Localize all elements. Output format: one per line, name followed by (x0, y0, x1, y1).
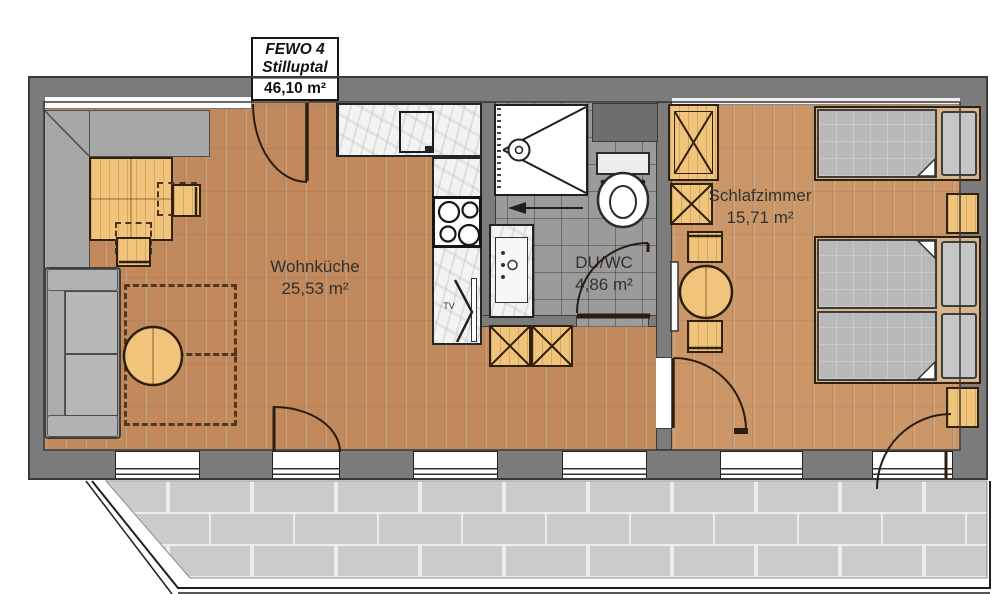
sofa-cushion-1 (65, 291, 118, 354)
bedroom-label: Schlafzimmer 15,71 m² (676, 185, 844, 229)
living-kitchen-name: Wohnküche (235, 256, 395, 278)
window-4 (720, 451, 803, 479)
window-3 (562, 451, 647, 479)
balcony-door-opening (872, 451, 953, 479)
sofa-armrest-top (47, 269, 118, 291)
terrace-paving (86, 481, 990, 594)
shower-wc-name: DU/WC (548, 252, 660, 274)
bed-single-pillow (941, 111, 977, 176)
chair-bottom (116, 237, 151, 267)
bedroom-name: Schlafzimmer (676, 185, 844, 207)
hall-cabinet-1 (489, 325, 531, 367)
bedroom-chair-south (687, 320, 723, 353)
window-2 (413, 451, 498, 479)
living-kitchen-label: Wohnküche 25,53 m² (235, 256, 395, 300)
sofa-armrest-bottom (47, 415, 118, 437)
wall-left (28, 77, 44, 479)
title-location: Stilluptal (253, 59, 337, 77)
title-project: FEWO 4 (253, 41, 337, 59)
stove (432, 196, 482, 248)
bedroom-area: 15,71 m² (676, 207, 844, 229)
shower (494, 104, 588, 196)
window-1 (115, 451, 200, 479)
bed-double-pillow-lower (941, 313, 977, 379)
hall-cabinet-2 (531, 325, 573, 367)
bedroom-divider-wall-lower (656, 428, 672, 450)
window-sill-living (44, 96, 252, 109)
chair-right (172, 184, 201, 217)
nightstand-2 (946, 387, 979, 428)
title-box: FEWO 4 Stilluptal 46,10 m² (251, 37, 339, 101)
bed-single-mattress (817, 109, 937, 178)
shower-wc-label: DU/WC 4,86 m² (548, 252, 660, 296)
bed-double-mattress-upper (817, 239, 937, 309)
floor-plan: TV Wohnküche 25,53 m² DU/WC 4,86 m² (0, 0, 1000, 594)
terrace-door-opening (272, 451, 340, 479)
tv-mount (471, 278, 477, 342)
bed-double-mattress-lower (817, 311, 937, 381)
shower-wc-area: 4,86 m² (548, 274, 660, 296)
bathroom-duct-block (592, 103, 658, 142)
toilet-tank (596, 152, 650, 175)
title-total-area: 46,10 m² (253, 78, 337, 98)
vanity-basin (495, 237, 528, 303)
wardrobe-1-inner (674, 111, 713, 174)
tv-label: TV (438, 301, 460, 311)
kitchen-sink-fitting (425, 146, 433, 152)
living-kitchen-area: 25,53 m² (235, 278, 395, 300)
bed-double-pillow-upper (941, 241, 977, 307)
bedroom-chair-north (687, 231, 723, 263)
sofa-bed-outline-midline (124, 353, 237, 356)
sofa-backrest (47, 272, 65, 434)
sofa-cushion-2 (65, 354, 118, 416)
corner-bench-left (44, 110, 90, 283)
nightstand-1 (946, 193, 979, 234)
